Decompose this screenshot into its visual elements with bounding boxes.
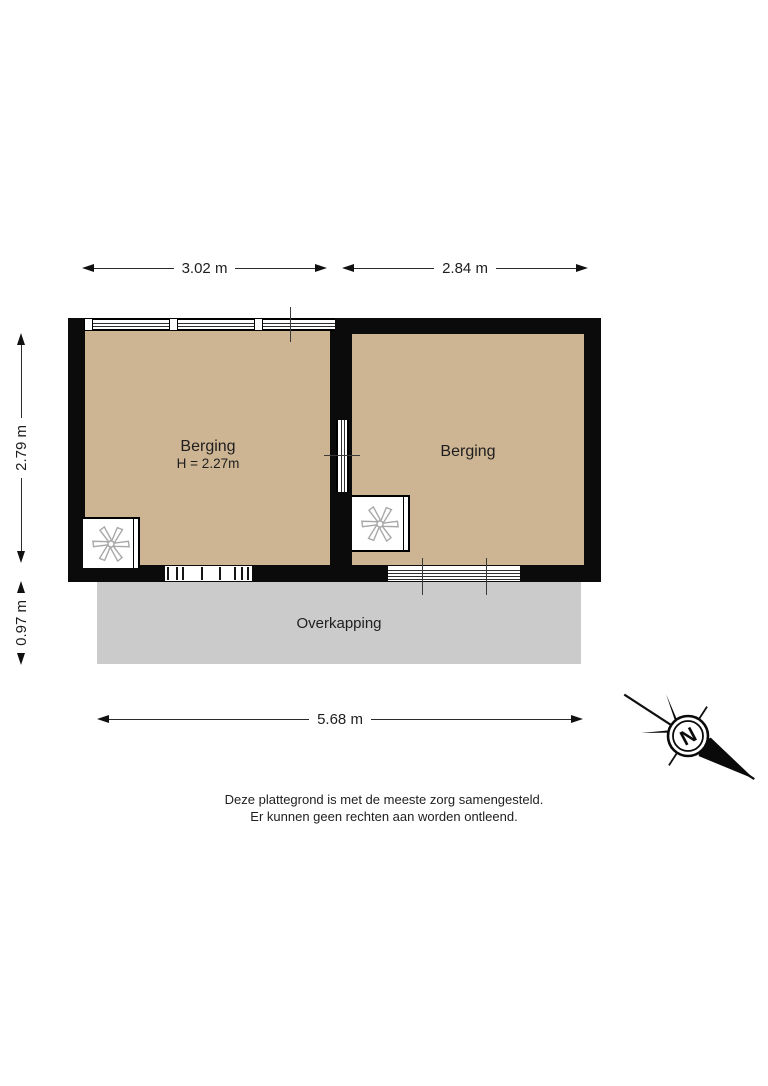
dimension-left-lower-label: 0.97 m [13,593,30,653]
dimension-bottom-label: 5.68 m [309,711,371,728]
arrow-left-icon [97,715,109,723]
dimension-bottom: 5.68 m [97,711,583,727]
reference-tick [422,558,423,595]
arrow-up-icon [17,333,25,345]
room-name: Berging [128,438,288,456]
window-bottom-right [388,566,520,581]
canopy-area: Overkapping [97,582,581,664]
window-top [85,318,335,331]
fan-unit-right [352,495,410,552]
arrow-right-icon [571,715,583,723]
room-right-label: Berging [388,443,548,461]
disclaimer-line-2: Er kunnen geen rechten aan worden ontlee… [0,809,768,826]
arrow-left-icon [82,264,94,272]
fan-unit-left [83,517,140,568]
floorplan-page: 3.02 m 2.84 m 2.79 m 0.97 m Overkapping [0,0,768,1086]
reference-tick [324,455,360,456]
dimension-left-upper: 2.79 m [13,333,29,563]
arrow-down-icon [17,653,25,665]
dimension-top-left-label: 3.02 m [174,260,236,277]
arrow-up-icon [17,581,25,593]
dimension-top-right: 2.84 m [342,260,588,276]
arrow-right-icon [315,264,327,272]
dimension-top-right-label: 2.84 m [434,260,496,277]
dimension-left-upper-label: 2.79 m [13,418,30,478]
fan-icon [90,523,132,565]
dimension-top-left: 3.02 m [82,260,327,276]
window-mullion [169,318,178,331]
window-mullion [84,318,93,331]
fan-icon [359,503,401,545]
door-bottom-left [165,566,252,581]
room-name: Berging [388,443,548,461]
disclaimer: Deze plattegrond is met de meeste zorg s… [0,792,768,826]
reference-tick [290,307,291,342]
arrow-down-icon [17,551,25,563]
disclaimer-line-1: Deze plattegrond is met de meeste zorg s… [0,792,768,809]
window-mullion [254,318,263,331]
canopy-label: Overkapping [296,615,381,632]
room-height-note: H = 2.27m [128,456,288,471]
arrow-left-icon [342,264,354,272]
window-middle-wall [336,420,349,492]
arrow-right-icon [576,264,588,272]
dimension-left-lower: 0.97 m [13,581,29,660]
reference-tick [486,558,487,595]
north-arrow-compass-icon: N [618,684,758,790]
room-left-label: Berging H = 2.27m [128,438,288,471]
